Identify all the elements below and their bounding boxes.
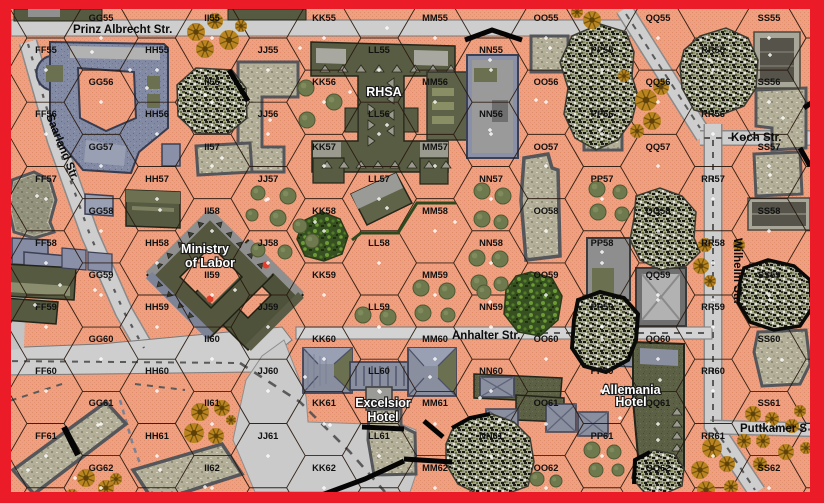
svg-text:PP60: PP60 (591, 366, 614, 376)
svg-text:QQ55: QQ55 (646, 13, 671, 23)
svg-text:SS56: SS56 (758, 77, 781, 87)
svg-text:PP56: PP56 (591, 109, 614, 119)
svg-text:MM60: MM60 (422, 334, 448, 344)
svg-text:JJ59: JJ59 (258, 302, 279, 312)
svg-text:HH61: HH61 (145, 431, 169, 441)
svg-text:FF55: FF55 (35, 45, 57, 55)
svg-text:GG60: GG60 (89, 334, 114, 344)
svg-text:of Labor: of Labor (185, 256, 235, 270)
svg-text:RHSA: RHSA (366, 85, 401, 99)
svg-text:Wilhelm Str.: Wilhelm Str. (731, 238, 743, 304)
svg-text:KK62: KK62 (312, 463, 336, 473)
svg-text:FF59: FF59 (35, 302, 57, 312)
svg-text:NN59: NN59 (479, 302, 503, 312)
svg-text:Hotel: Hotel (615, 395, 646, 409)
svg-text:Koch Str.: Koch Str. (731, 132, 781, 144)
svg-text:RR61: RR61 (701, 431, 725, 441)
svg-text:Puttkamer S: Puttkamer S (740, 423, 807, 435)
svg-text:Excelsior: Excelsior (355, 396, 411, 410)
svg-text:FF61: FF61 (35, 431, 57, 441)
svg-text:NN56: NN56 (479, 109, 503, 119)
svg-text:RR60: RR60 (701, 366, 725, 376)
svg-text:RR55: RR55 (701, 45, 725, 55)
svg-text:GG59: GG59 (89, 270, 114, 280)
svg-text:OO59: OO59 (534, 270, 559, 280)
svg-text:JJ57: JJ57 (258, 174, 279, 184)
svg-text:MM58: MM58 (422, 206, 448, 216)
svg-text:GG55: GG55 (89, 13, 114, 23)
svg-text:HH55: HH55 (145, 45, 169, 55)
svg-text:JJ55: JJ55 (258, 45, 279, 55)
svg-text:HH57: HH57 (145, 174, 169, 184)
svg-text:Anhalter Str.: Anhalter Str. (452, 330, 520, 342)
svg-text:OO56: OO56 (534, 77, 559, 87)
svg-text:MM55: MM55 (422, 13, 448, 23)
svg-text:RR56: RR56 (701, 109, 725, 119)
svg-text:GG56: GG56 (89, 77, 114, 87)
svg-text:LL57: LL57 (368, 174, 390, 184)
svg-text:SS61: SS61 (758, 398, 781, 408)
svg-text:LL59: LL59 (368, 302, 390, 312)
svg-text:JJ61: JJ61 (258, 431, 279, 441)
svg-text:FF58: FF58 (35, 238, 57, 248)
svg-text:OO61: OO61 (534, 398, 559, 408)
svg-text:NN61: NN61 (479, 431, 503, 441)
svg-text:II62: II62 (204, 463, 220, 473)
svg-text:LL58: LL58 (368, 238, 390, 248)
svg-text:QQ62: QQ62 (646, 463, 671, 473)
svg-text:II55: II55 (204, 13, 220, 23)
svg-text:PP59: PP59 (591, 302, 614, 312)
svg-text:KK61: KK61 (312, 398, 336, 408)
svg-text:PP57: PP57 (591, 174, 614, 184)
svg-text:QQ57: QQ57 (646, 142, 671, 152)
svg-text:SS58: SS58 (758, 206, 781, 216)
svg-text:RR58: RR58 (701, 238, 725, 248)
svg-text:QQ59: QQ59 (646, 270, 671, 280)
svg-text:RR57: RR57 (701, 174, 725, 184)
svg-text:OO58: OO58 (534, 206, 559, 216)
svg-text:SS59: SS59 (758, 270, 781, 280)
svg-text:Prinz Albrecht Str.: Prinz Albrecht Str. (73, 24, 172, 36)
svg-text:II58: II58 (204, 206, 220, 216)
svg-text:OO60: OO60 (534, 334, 559, 344)
svg-text:JJ58: JJ58 (258, 238, 279, 248)
svg-text:MM61: MM61 (422, 398, 448, 408)
svg-text:SS62: SS62 (758, 463, 781, 473)
svg-text:II61: II61 (204, 398, 220, 408)
svg-text:KK58: KK58 (312, 206, 336, 216)
svg-text:PP55: PP55 (591, 45, 614, 55)
svg-text:QQ56: QQ56 (646, 77, 671, 87)
svg-text:II56: II56 (204, 77, 220, 87)
svg-text:SS55: SS55 (758, 13, 781, 23)
svg-text:MM59: MM59 (422, 270, 448, 280)
svg-text:KK56: KK56 (312, 77, 336, 87)
svg-text:QQ60: QQ60 (646, 334, 671, 344)
svg-text:LL60: LL60 (368, 366, 390, 376)
svg-text:II57: II57 (204, 142, 220, 152)
svg-text:LL61: LL61 (368, 431, 390, 441)
svg-text:KK55: KK55 (312, 13, 336, 23)
svg-text:II59: II59 (204, 270, 220, 280)
svg-text:RR59: RR59 (701, 302, 725, 312)
svg-text:PP61: PP61 (591, 431, 614, 441)
svg-text:II60: II60 (204, 334, 220, 344)
svg-text:OO55: OO55 (534, 13, 559, 23)
svg-text:GG61: GG61 (89, 398, 114, 408)
svg-text:QQ61: QQ61 (646, 398, 671, 408)
svg-text:GG62: GG62 (89, 463, 114, 473)
svg-text:JJ60: JJ60 (258, 366, 279, 376)
svg-text:KK59: KK59 (312, 270, 336, 280)
svg-text:HH59: HH59 (145, 302, 169, 312)
svg-text:KK57: KK57 (312, 142, 336, 152)
svg-text:LL56: LL56 (368, 109, 390, 119)
svg-text:SS60: SS60 (758, 334, 781, 344)
svg-text:FF60: FF60 (35, 366, 57, 376)
svg-text:LL55: LL55 (368, 45, 390, 55)
svg-text:HH56: HH56 (145, 109, 169, 119)
svg-text:JJ56: JJ56 (258, 109, 279, 119)
svg-text:MM57: MM57 (422, 142, 448, 152)
svg-text:PP58: PP58 (591, 238, 614, 248)
svg-text:GG58: GG58 (89, 206, 114, 216)
svg-text:OO57: OO57 (534, 142, 559, 152)
svg-text:HH58: HH58 (145, 238, 169, 248)
svg-text:NN60: NN60 (479, 366, 503, 376)
svg-text:MM62: MM62 (422, 463, 448, 473)
svg-text:OO62: OO62 (534, 463, 559, 473)
svg-text:NN55: NN55 (479, 45, 503, 55)
svg-text:HH60: HH60 (145, 366, 169, 376)
svg-text:NN57: NN57 (479, 174, 503, 184)
svg-text:KK60: KK60 (312, 334, 336, 344)
svg-text:NN58: NN58 (479, 238, 503, 248)
svg-text:Hotel: Hotel (367, 410, 398, 424)
svg-text:FF57: FF57 (35, 174, 57, 184)
svg-text:MM56: MM56 (422, 77, 448, 87)
svg-text:QQ58: QQ58 (646, 206, 671, 216)
svg-text:Ministry: Ministry (181, 242, 229, 256)
svg-text:GG57: GG57 (89, 142, 114, 152)
